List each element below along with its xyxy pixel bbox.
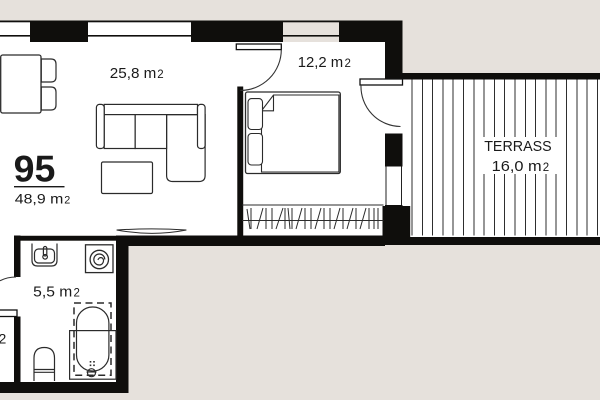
- svg-text:2: 2: [345, 58, 351, 70]
- svg-text:2: 2: [157, 69, 163, 81]
- svg-text:2: 2: [0, 331, 7, 347]
- svg-text:16,0 m: 16,0 m: [492, 158, 542, 175]
- svg-text:2: 2: [64, 194, 70, 206]
- svg-text:2: 2: [74, 288, 80, 300]
- svg-text:25,8 m: 25,8 m: [110, 65, 157, 82]
- svg-text:95: 95: [14, 148, 56, 190]
- svg-text:TERRASS: TERRASS: [484, 139, 552, 155]
- svg-text:2: 2: [543, 162, 549, 174]
- svg-text:48,9 m: 48,9 m: [15, 190, 64, 206]
- svg-text:5,5 m: 5,5 m: [33, 284, 72, 301]
- svg-text:12,2 m: 12,2 m: [298, 54, 344, 71]
